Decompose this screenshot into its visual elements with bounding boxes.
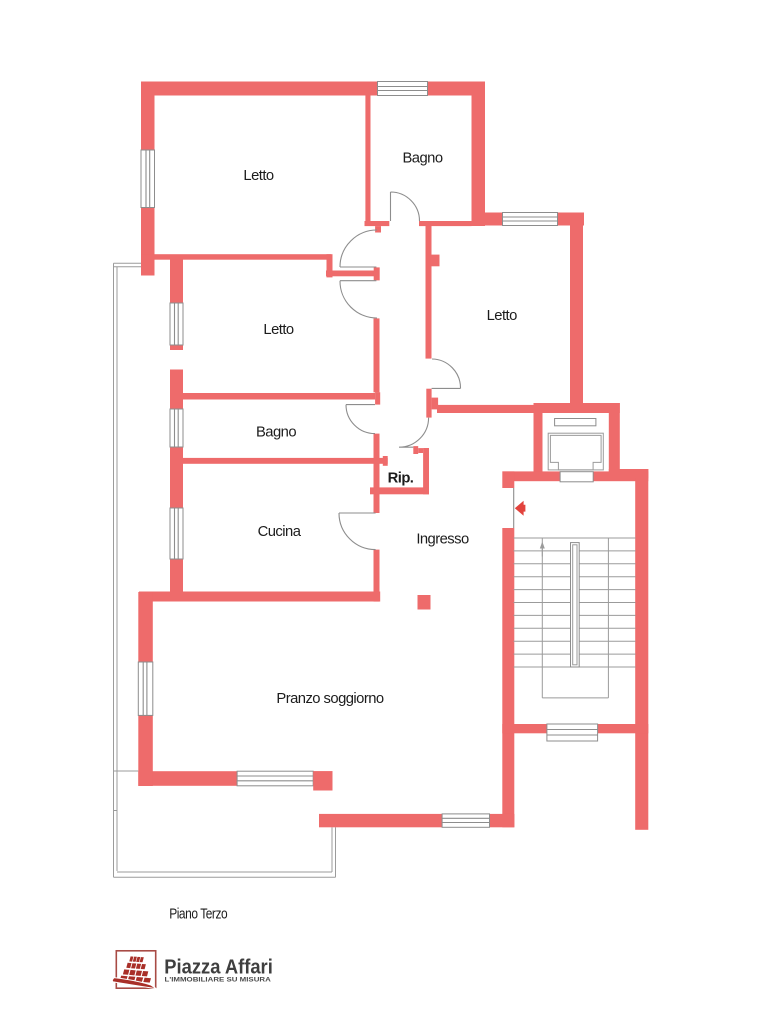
svg-text:Piano Terzo: Piano Terzo [169,906,227,922]
svg-text:Rip.: Rip. [388,471,414,487]
svg-text:Bagno: Bagno [256,425,296,441]
svg-text:Letto: Letto [263,322,293,338]
svg-text:Bagno: Bagno [402,151,442,167]
svg-text:Piazza Affari: Piazza Affari [164,957,272,979]
svg-text:Letto: Letto [243,168,273,184]
svg-text:L'IMMOBILIARE SU MISURA: L'IMMOBILIARE SU MISURA [165,976,272,983]
svg-text:Letto: Letto [487,308,517,324]
svg-text:Pranzo soggiorno: Pranzo soggiorno [276,691,384,707]
svg-text:Ingresso: Ingresso [416,532,469,548]
svg-text:Cucina: Cucina [258,524,302,540]
